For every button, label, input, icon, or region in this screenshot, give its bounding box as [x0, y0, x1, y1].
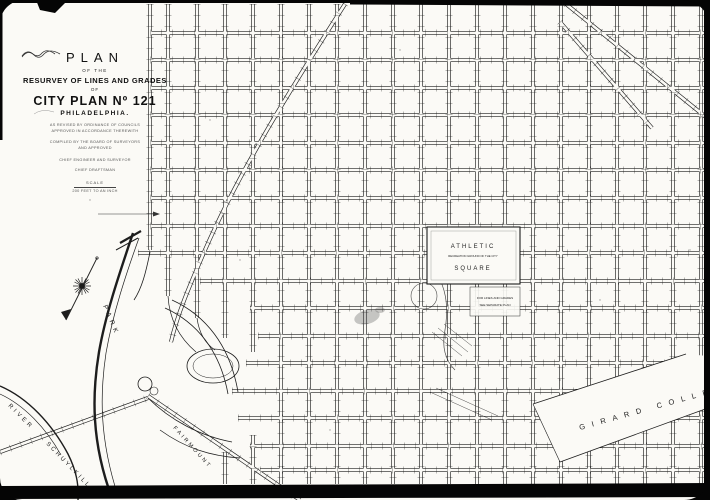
- map-canvas: ATHLETIC RECREATION GROUND OF THE CITY S…: [0, 0, 710, 500]
- athletic-square-label-3: SQUARE: [454, 266, 491, 272]
- athletic-square: ATHLETIC RECREATION GROUND OF THE CITY S…: [427, 227, 520, 284]
- plan-note-block: FOR LINES AND GRADES SEE SEPARATE PLAN: [470, 287, 520, 316]
- plan-note-line-2: SEE SEPARATE PLAN: [479, 303, 510, 307]
- plan-note-line-1: FOR LINES AND GRADES: [477, 296, 513, 300]
- map-scan: ATHLETIC RECREATION GROUND OF THE CITY S…: [0, 0, 710, 500]
- athletic-square-label-1: ATHLETIC: [451, 244, 496, 250]
- athletic-square-label-2: RECREATION GROUND OF THE CITY: [448, 254, 498, 258]
